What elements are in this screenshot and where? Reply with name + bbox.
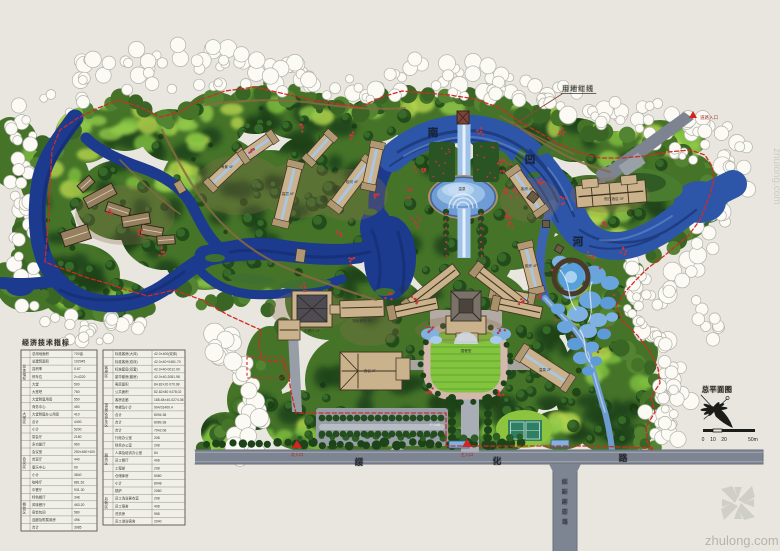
svg-text:豪华套房(套房): 豪华套房(套房) bbox=[115, 374, 138, 379]
svg-text:客房走廊: 客房走廊 bbox=[115, 397, 129, 402]
svg-text:假日酒店 3F: 假日酒店 3F bbox=[604, 196, 624, 201]
svg-text:停车位: 停车位 bbox=[32, 374, 43, 379]
svg-text:904/31400.4: 904/31400.4 bbox=[154, 405, 173, 409]
svg-text:小计: 小计 bbox=[32, 427, 39, 432]
svg-text:580: 580 bbox=[74, 511, 80, 515]
svg-text:宴会厅: 宴会厅 bbox=[399, 286, 410, 291]
svg-text:合计: 合计 bbox=[115, 420, 122, 425]
svg-text:风味餐厅: 风味餐厅 bbox=[32, 502, 46, 507]
svg-text:5080: 5080 bbox=[154, 474, 162, 478]
svg-text:7942.08: 7942.08 bbox=[154, 428, 166, 432]
svg-text:中餐厅: 中餐厅 bbox=[32, 487, 43, 492]
svg-text:2×4220: 2×4220 bbox=[74, 375, 86, 379]
svg-text:0.67: 0.67 bbox=[74, 367, 81, 371]
svg-text:客房面积: 客房面积 bbox=[115, 382, 129, 387]
svg-text:客房 4F: 客房 4F bbox=[525, 263, 538, 268]
svg-text:zhulong.com: zhulong.com bbox=[771, 148, 780, 205]
svg-text:区: 区 bbox=[105, 505, 109, 509]
svg-text:绥: 绥 bbox=[355, 457, 364, 467]
svg-text:348: 348 bbox=[74, 495, 80, 499]
svg-text:42.0×400(双床): 42.0×400(双床) bbox=[154, 351, 177, 356]
svg-text:公共面积: 公共面积 bbox=[115, 389, 129, 394]
svg-text:员工餐厅: 员工餐厅 bbox=[115, 458, 129, 463]
svg-text:总用地面积: 总用地面积 bbox=[32, 351, 50, 356]
svg-text:408: 408 bbox=[154, 504, 160, 508]
svg-text:区: 区 bbox=[23, 465, 27, 469]
svg-text:仓储库房: 仓储库房 bbox=[115, 473, 129, 478]
svg-text:客房 4F: 客房 4F bbox=[521, 186, 534, 191]
svg-text:合计: 合计 bbox=[32, 525, 39, 530]
svg-text:8094.38: 8094.38 bbox=[154, 413, 166, 417]
svg-text:8048: 8048 bbox=[154, 482, 162, 486]
svg-text:小计: 小计 bbox=[32, 472, 39, 477]
svg-text:区: 区 bbox=[23, 420, 27, 424]
svg-text:881.62: 881.62 bbox=[74, 480, 84, 484]
svg-text:84.82×20 070.98: 84.82×20 070.98 bbox=[154, 383, 180, 387]
svg-text:多功能厅: 多功能厅 bbox=[32, 442, 46, 447]
svg-text:931.30: 931.30 bbox=[74, 488, 84, 492]
svg-text:0: 0 bbox=[702, 437, 705, 443]
svg-text:路: 路 bbox=[619, 453, 628, 463]
svg-text:凹: 凹 bbox=[525, 154, 536, 166]
svg-text:国餐堂: 国餐堂 bbox=[461, 348, 472, 353]
svg-text:人事及培训办公室: 人事及培训办公室 bbox=[115, 450, 143, 455]
svg-text:用地红线: 用地红线 bbox=[562, 84, 594, 93]
svg-text:463.20: 463.20 bbox=[74, 503, 84, 507]
svg-text:区: 区 bbox=[105, 461, 109, 465]
svg-text:会议 2F: 会议 2F bbox=[364, 368, 377, 373]
svg-text:合计: 合计 bbox=[32, 419, 39, 424]
svg-text:标准客房(双床): 标准客房(双床) bbox=[115, 359, 138, 364]
svg-text:2040: 2040 bbox=[154, 520, 162, 524]
svg-text:海景 4F: 海景 4F bbox=[221, 164, 234, 169]
svg-text:496: 496 bbox=[74, 518, 80, 522]
svg-text:标准套房(双套): 标准套房(双套) bbox=[115, 366, 138, 371]
svg-text:960: 960 bbox=[74, 443, 80, 447]
svg-text:410: 410 bbox=[74, 413, 80, 417]
svg-text:特色餐厅 2F: 特色餐厅 2F bbox=[352, 318, 372, 323]
svg-text:临河 4F: 临河 4F bbox=[346, 179, 359, 184]
svg-text:员工宿舍: 员工宿舍 bbox=[115, 503, 129, 508]
svg-text:标: 标 bbox=[23, 376, 27, 381]
svg-text:408: 408 bbox=[154, 459, 160, 463]
svg-text:188.48×40-0274.08: 188.48×40-0274.08 bbox=[154, 398, 184, 402]
svg-text:经济技术指标: 经济技术指标 bbox=[22, 338, 70, 347]
svg-text:行政办公室: 行政办公室 bbox=[115, 435, 133, 440]
svg-text:大堂附属用房: 大堂附属用房 bbox=[32, 396, 53, 401]
svg-text:50m: 50m bbox=[748, 437, 758, 443]
svg-text:区: 区 bbox=[105, 374, 109, 378]
svg-text:连廊及附属用房: 连廊及附属用房 bbox=[32, 517, 56, 522]
svg-text:主入口: 主入口 bbox=[461, 451, 474, 457]
svg-text:208: 208 bbox=[154, 497, 160, 501]
svg-text:3840: 3840 bbox=[74, 473, 82, 477]
svg-text:特色餐厅: 特色餐厅 bbox=[32, 494, 46, 499]
svg-text:大堂: 大堂 bbox=[32, 381, 39, 386]
svg-text:440: 440 bbox=[74, 458, 80, 462]
svg-text:2180: 2180 bbox=[74, 435, 82, 439]
svg-text:700亩: 700亩 bbox=[74, 351, 84, 356]
svg-text:道路入口: 道路入口 bbox=[700, 114, 718, 121]
svg-text:4400: 4400 bbox=[74, 420, 82, 424]
svg-text:工程部: 工程部 bbox=[115, 465, 126, 470]
svg-text:贵宾厅: 贵宾厅 bbox=[32, 457, 43, 462]
svg-text:总平面图: 总平面图 bbox=[702, 385, 733, 394]
svg-text:高层 6F: 高层 6F bbox=[282, 191, 295, 196]
svg-text:商务中心: 商务中心 bbox=[32, 404, 46, 409]
svg-text:大堂吧: 大堂吧 bbox=[32, 389, 43, 394]
svg-text:康乐中心: 康乐中心 bbox=[32, 464, 46, 469]
svg-text:咖啡厅: 咖啡厅 bbox=[32, 479, 43, 484]
svg-text:2080: 2080 bbox=[154, 489, 162, 493]
svg-text:员工洗浴更衣室: 员工洗浴更衣室 bbox=[115, 496, 139, 501]
svg-text:500: 500 bbox=[74, 382, 80, 386]
svg-text:标准客房(大床): 标准客房(大床) bbox=[115, 351, 138, 356]
svg-text:550: 550 bbox=[74, 397, 80, 401]
svg-text:南: 南 bbox=[428, 126, 439, 139]
svg-text:84: 84 bbox=[154, 451, 158, 455]
svg-text:zhulong.com: zhulong.com bbox=[705, 533, 779, 548]
svg-text:208: 208 bbox=[154, 444, 160, 448]
svg-text:化: 化 bbox=[493, 456, 502, 466]
svg-text:102945: 102945 bbox=[74, 360, 85, 364]
svg-text:8089.38: 8089.38 bbox=[154, 421, 166, 425]
svg-text:5200: 5200 bbox=[74, 428, 82, 432]
svg-text:宴会厅: 宴会厅 bbox=[32, 434, 43, 439]
svg-text:次入口: 次入口 bbox=[291, 451, 304, 458]
svg-text:员工淋浴宿舍: 员工淋浴宿舍 bbox=[115, 519, 136, 524]
svg-text:温泉 2F: 温泉 2F bbox=[539, 367, 552, 372]
svg-text:区: 区 bbox=[23, 510, 27, 514]
svg-text:82.82×80 0478.02: 82.82×80 0478.02 bbox=[154, 390, 182, 394]
svg-text:区: 区 bbox=[105, 424, 109, 428]
svg-text:208: 208 bbox=[154, 466, 160, 470]
svg-text:电梯及小计: 电梯及小计 bbox=[115, 404, 133, 409]
svg-text:中餐厅 2F: 中餐厅 2F bbox=[304, 328, 321, 333]
svg-text:财务办公室: 财务办公室 bbox=[115, 443, 133, 448]
svg-text:450: 450 bbox=[74, 405, 80, 409]
svg-text:42.0×40-0012.00: 42.0×40-0012.00 bbox=[154, 367, 180, 371]
svg-text:宴会包间: 宴会包间 bbox=[32, 510, 46, 515]
svg-text:250×450+400: 250×450+400 bbox=[74, 450, 95, 454]
svg-text:958: 958 bbox=[154, 512, 160, 516]
svg-text:760: 760 bbox=[74, 390, 80, 394]
svg-text:P 146: P 146 bbox=[430, 422, 441, 427]
svg-text:合计: 合计 bbox=[115, 427, 122, 432]
svg-text:河: 河 bbox=[573, 236, 584, 248]
svg-text:42.0×40+0481.70: 42.0×40+0481.70 bbox=[154, 360, 181, 364]
svg-text:洗衣房: 洗衣房 bbox=[115, 511, 126, 516]
svg-text:10: 10 bbox=[710, 437, 716, 443]
svg-text:3085: 3085 bbox=[74, 526, 82, 530]
svg-text:208: 208 bbox=[154, 436, 160, 440]
svg-text:总建筑面积: 总建筑面积 bbox=[32, 359, 50, 364]
svg-text:会议室: 会议室 bbox=[32, 449, 43, 454]
svg-text:容积率: 容积率 bbox=[32, 366, 43, 371]
svg-text:大堂附属办公用房: 大堂附属办公用房 bbox=[32, 412, 60, 417]
svg-text:20: 20 bbox=[721, 437, 727, 443]
svg-text:温泉: 温泉 bbox=[458, 186, 466, 191]
svg-text:合计: 合计 bbox=[115, 412, 122, 417]
svg-text:90: 90 bbox=[74, 465, 78, 469]
svg-text:小计: 小计 bbox=[115, 481, 122, 486]
svg-text:锅炉: 锅炉 bbox=[115, 488, 122, 493]
svg-text:42.0×40-2081.98: 42.0×40-2081.98 bbox=[154, 375, 180, 379]
